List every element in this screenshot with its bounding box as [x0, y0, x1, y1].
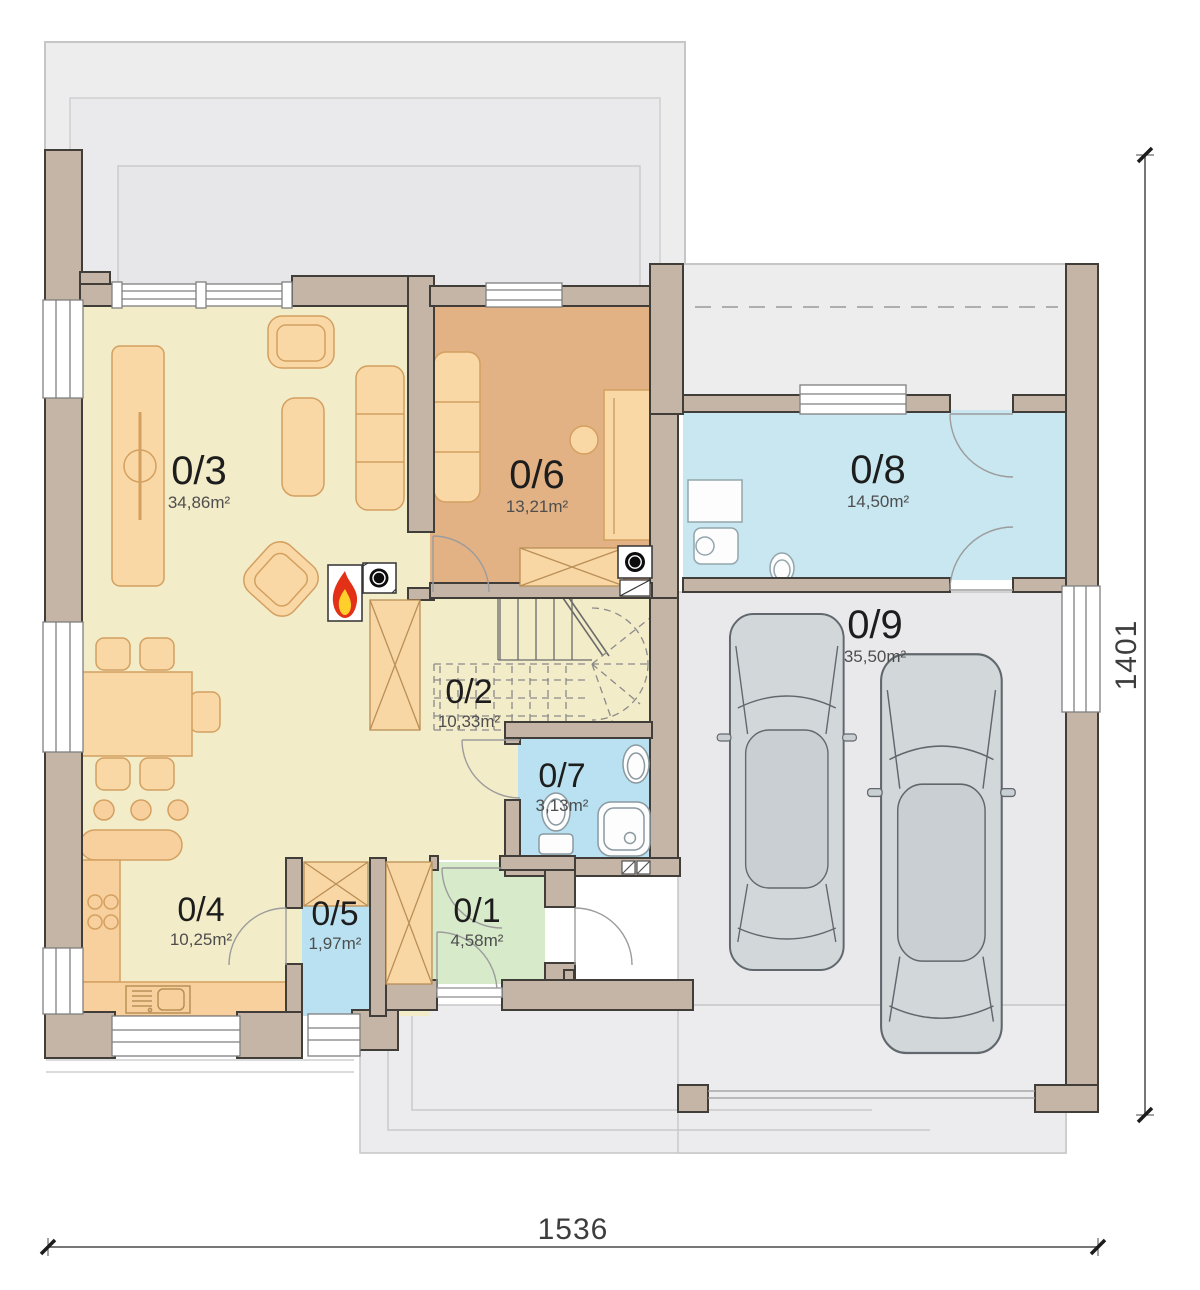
entrance-threshold	[437, 988, 502, 997]
toilet-icon	[539, 793, 573, 854]
window-0-5	[308, 1014, 360, 1056]
office-chair	[694, 528, 738, 564]
desk-chair	[570, 426, 598, 454]
floor-plan-canvas: 0/3 34,86m² 0/6 13,21m² 0/8 14,50m² 0/9 …	[0, 0, 1200, 1290]
fireplace-icon	[328, 565, 362, 621]
desk	[604, 390, 650, 540]
window-0-6	[486, 283, 562, 307]
cabinet-0-5	[304, 862, 368, 906]
window-garage	[1062, 586, 1100, 712]
car-1	[717, 614, 856, 970]
floor-plan-drawing	[0, 0, 1200, 1290]
tv-cabinet	[112, 346, 164, 586]
terrace-area	[45, 42, 685, 292]
window-0-8	[800, 385, 906, 414]
shower-icon	[598, 802, 650, 856]
sofa	[356, 366, 404, 510]
office-desk	[688, 480, 742, 522]
bar-stool	[94, 800, 114, 820]
wardrobe-hall	[370, 600, 420, 730]
car-2	[868, 654, 1016, 1053]
washbasin-icon	[623, 745, 649, 783]
chimney-icon	[363, 563, 396, 593]
kitchen-counter-bottom	[82, 982, 302, 1016]
chimney-icon-2	[618, 546, 652, 596]
sofa-bed	[434, 352, 480, 502]
window-left-3	[43, 948, 83, 1014]
bar-stool	[131, 800, 151, 820]
coffee-table	[282, 398, 324, 496]
bar-counter	[80, 830, 182, 860]
window-terrace-band	[112, 282, 292, 308]
wardrobe-entry	[386, 862, 432, 984]
cabinet-0-6	[520, 548, 624, 586]
window-left-2	[43, 622, 83, 752]
dimension-bottom: 1536	[538, 1213, 609, 1247]
room-0-1-floor	[430, 862, 545, 984]
window-left-1	[43, 300, 83, 398]
armchair	[268, 316, 334, 368]
bar-stool	[168, 800, 188, 820]
dimension-right: 1401	[1110, 620, 1144, 691]
window-kitchen	[112, 1016, 240, 1056]
door-0-1-garage	[575, 908, 632, 965]
